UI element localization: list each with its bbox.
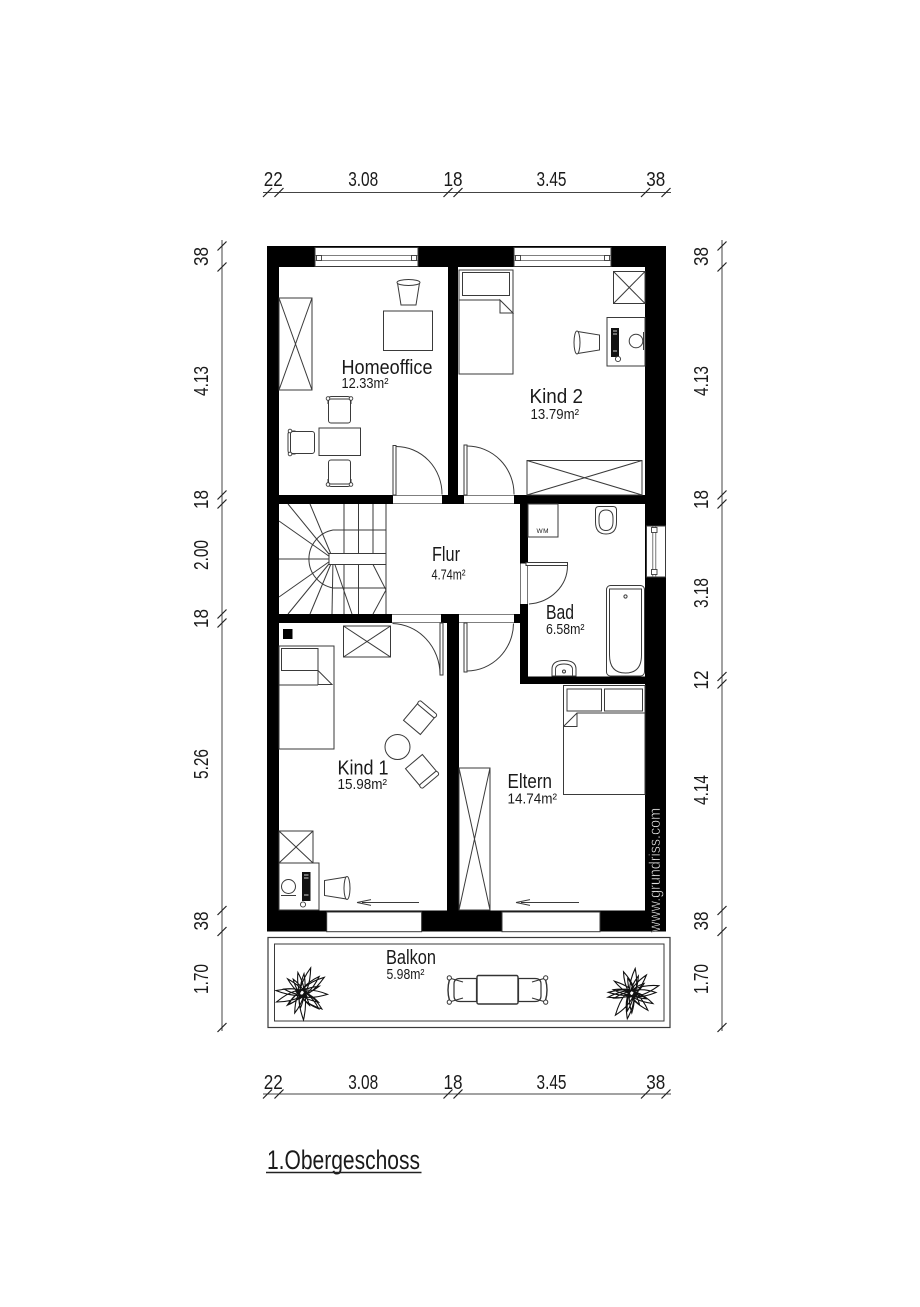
svg-text:4.74m²: 4.74m² [432,568,466,584]
svg-text:1.70: 1.70 [191,964,213,994]
svg-text:WM: WM [537,528,550,535]
svg-text:12.33m²: 12.33m² [342,376,389,392]
svg-text:38: 38 [691,912,713,931]
svg-text:38: 38 [691,247,713,266]
svg-text:15.98m²: 15.98m² [338,777,388,793]
svg-text:Bad: Bad [546,601,574,624]
svg-text:Eltern: Eltern [508,770,553,793]
svg-text:18: 18 [191,490,213,509]
svg-text:6.58m²: 6.58m² [546,622,585,638]
svg-text:12: 12 [691,671,713,690]
svg-text:3.08: 3.08 [348,169,378,191]
svg-text:5.98m²: 5.98m² [387,967,425,983]
svg-text:22: 22 [264,169,283,191]
svg-text:38: 38 [646,1072,665,1094]
svg-text:14.74m²: 14.74m² [508,792,558,808]
svg-text:1.70: 1.70 [691,964,713,994]
svg-text:18: 18 [691,490,713,509]
svg-text:18: 18 [444,1072,463,1094]
svg-text:13.79m²: 13.79m² [531,407,580,423]
svg-text:Kind 2: Kind 2 [530,385,584,408]
svg-text:18: 18 [444,169,463,191]
svg-text:3.45: 3.45 [537,169,567,191]
svg-text:www.grundriss.com: www.grundriss.com [647,808,664,933]
svg-text:4.14: 4.14 [691,775,713,805]
svg-text:18: 18 [191,609,213,628]
svg-text:5.26: 5.26 [191,749,213,779]
svg-text:38: 38 [191,912,213,931]
svg-text:4.13: 4.13 [691,366,713,396]
svg-text:22: 22 [264,1072,283,1094]
svg-text:Flur: Flur [432,543,460,566]
svg-text:1.Obergeschoss: 1.Obergeschoss [267,1145,420,1175]
svg-text:3.08: 3.08 [348,1072,378,1094]
svg-text:38: 38 [646,169,665,191]
svg-text:2.00: 2.00 [191,540,213,570]
svg-text:3.45: 3.45 [537,1072,567,1094]
svg-text:38: 38 [191,247,213,266]
svg-text:Balkon: Balkon [386,946,436,969]
svg-text:3.18: 3.18 [691,578,713,608]
svg-text:4.13: 4.13 [191,366,213,396]
